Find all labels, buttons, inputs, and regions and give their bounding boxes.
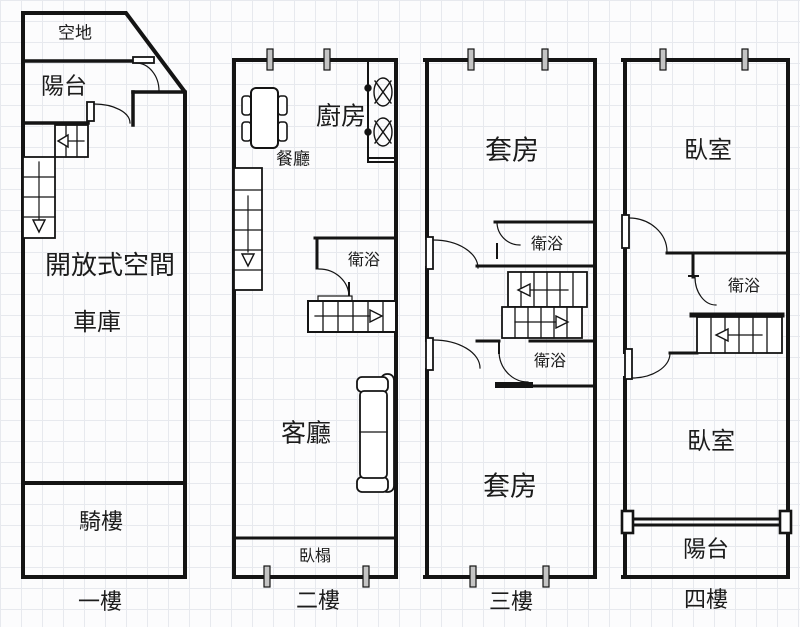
room-label-bath-3f-btm: 衛浴 (534, 353, 566, 369)
room-label-dining: 餐廳 (276, 152, 310, 169)
room-label-bath-2f: 衛浴 (348, 252, 380, 268)
room-label-bedroom-top: 臥室 (684, 138, 732, 162)
room-label-vacant-lot: 空地 (58, 26, 92, 43)
floor1-door-balcony (87, 102, 130, 123)
floor3-bath-door-top (497, 222, 520, 258)
floor4-entry-door-bottom (625, 349, 670, 379)
room-label-balcony-4f: 陽台 (683, 539, 729, 562)
room-label-arcade: 騎樓 (79, 512, 123, 534)
floor2-dining-table (242, 88, 287, 148)
stove-burner-icon (365, 118, 392, 146)
floor3-bath-door-bottom (499, 343, 528, 382)
floor2-kitchen-counter (365, 62, 394, 162)
floor2-right-stairs (308, 296, 396, 332)
floor4-stairs (697, 317, 782, 353)
floor1-stairs (23, 125, 88, 238)
floor3-stairs (502, 272, 587, 338)
floor3-suite-door-bottom (426, 338, 480, 370)
floor-label-2f: 二樓 (296, 591, 340, 613)
floor4-bath-door (689, 276, 716, 305)
room-label-open-space: 開放式空間 (45, 253, 175, 279)
floor4-balcony-railing (622, 511, 791, 533)
floor4-entry-door-top (622, 215, 667, 252)
floor-label-3f: 三樓 (489, 592, 533, 614)
room-label-balcony-1f: 陽台 (41, 76, 87, 99)
room-label-suite-top: 套房 (485, 138, 539, 165)
floor2-sofa (357, 374, 394, 492)
room-label-daybed: 臥榻 (299, 548, 331, 564)
room-label-bedroom-bottom: 臥室 (687, 429, 735, 453)
room-label-bath-4f: 衛浴 (728, 278, 760, 294)
room-label-suite-bottom: 套房 (483, 474, 537, 501)
stove-burner-icon (365, 78, 392, 106)
floor-label-1f: 一樓 (78, 592, 122, 614)
room-label-kitchen: 廚房 (316, 104, 366, 129)
room-label-garage: 車庫 (73, 310, 121, 334)
floor1-door-vacantlot (133, 57, 159, 91)
floor-label-4f: 四樓 (684, 590, 728, 612)
room-label-bath-3f-top: 衛浴 (531, 236, 563, 252)
floor2-bath-door (319, 269, 349, 298)
room-label-living: 客廳 (281, 421, 331, 446)
floor3-suite-door-top (426, 237, 478, 269)
floor-plan-canvas: 空地 陽台 開放式空間 車庫 騎樓 一樓 餐廳 廚房 衛浴 客廳 臥榻 二樓 套… (0, 0, 800, 627)
floor2-left-stairs (234, 168, 262, 290)
